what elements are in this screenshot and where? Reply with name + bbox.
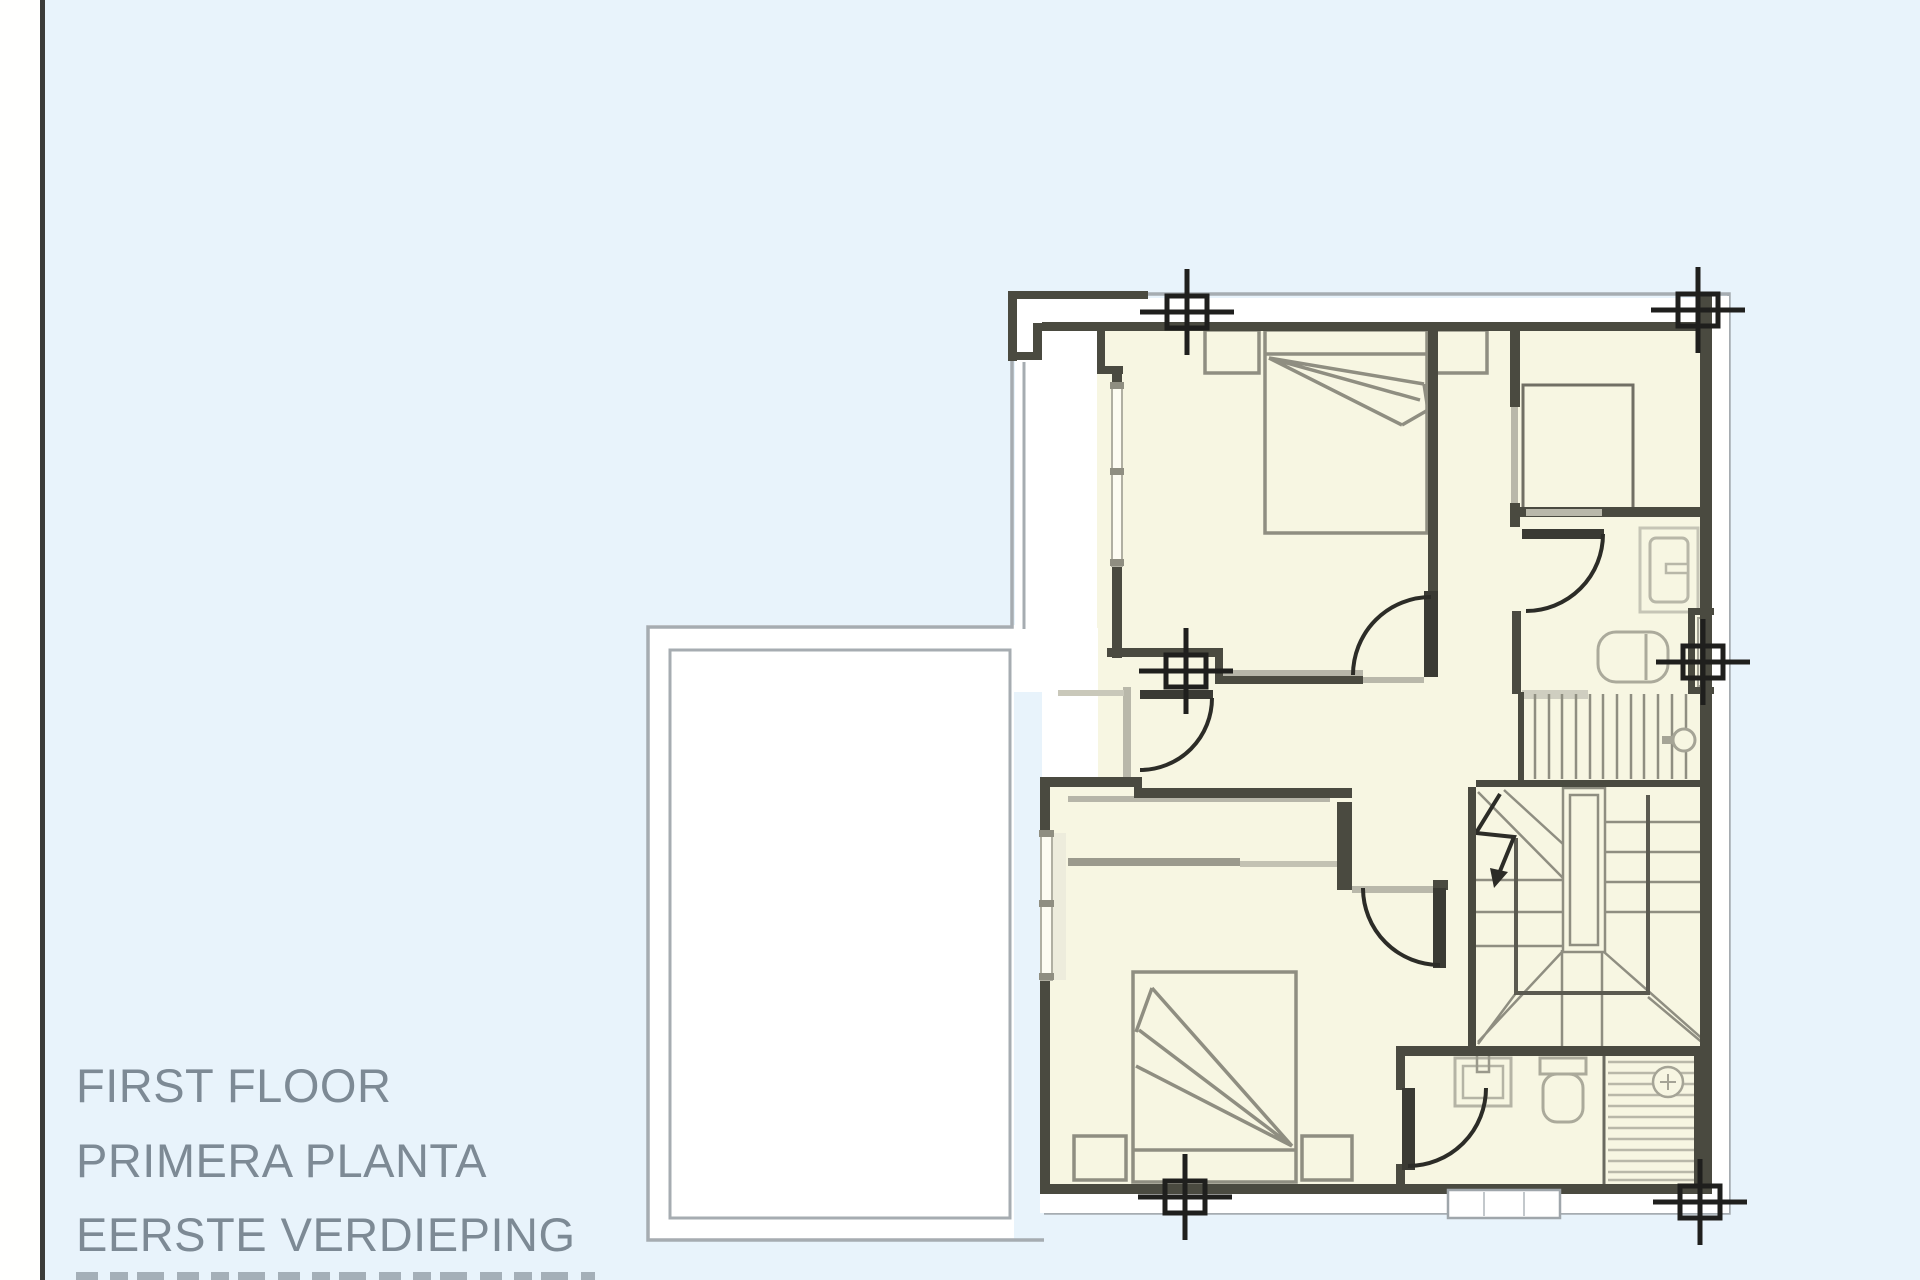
paper-margin	[0, 0, 40, 1280]
wall	[1008, 291, 1148, 299]
wall-bedroom2-top	[1134, 788, 1352, 798]
door-leaf	[1433, 888, 1446, 968]
wall-stair-left	[1468, 787, 1476, 1047]
wardrobe-strip-light	[1240, 861, 1338, 867]
wall	[1040, 980, 1050, 1184]
wall	[1033, 323, 1042, 360]
window-mullion	[1110, 468, 1124, 475]
door-leaf	[1522, 529, 1604, 539]
niche-wall	[1688, 608, 1695, 694]
door-leaf	[1424, 591, 1438, 677]
left-setback-notch	[1042, 628, 1098, 779]
wall-bedroom2-right	[1337, 802, 1352, 890]
page: FIRST FLOOR PRIMERA PLANTA EERSTE VERDIE…	[0, 0, 1920, 1280]
stair-core-inner	[1570, 795, 1598, 945]
wall	[1396, 1046, 1405, 1090]
wardrobe-strip	[1068, 858, 1240, 866]
right-white-band	[1712, 296, 1729, 1213]
wall	[1518, 692, 1524, 780]
wall	[1112, 560, 1122, 658]
caption-primera-planta: PRIMERA PLANTA	[76, 1137, 487, 1184]
caption-eerste-verdieping: EERSTE VERDIEPING	[76, 1211, 576, 1258]
caption-first-floor: FIRST FLOOR	[76, 1062, 391, 1109]
terrace-inner-outline	[670, 650, 1010, 1218]
window-mullion	[1110, 559, 1124, 566]
shower-handle	[1666, 564, 1688, 573]
wall-bath-top	[1396, 1046, 1712, 1056]
door-opening	[1526, 509, 1602, 516]
door-leaf	[1402, 1088, 1415, 1170]
window-mullion	[1039, 830, 1054, 837]
wall	[1512, 611, 1521, 694]
window-mullion	[1039, 973, 1054, 980]
newel-post-icon	[1673, 729, 1695, 751]
clipped-caption-line	[76, 1272, 595, 1280]
window-mullion	[1039, 900, 1054, 907]
wall-closet-left	[1510, 322, 1520, 407]
stair-handrail	[1522, 690, 1588, 699]
wall	[1040, 777, 1050, 833]
wall-bottom	[1040, 1184, 1712, 1194]
wall	[1040, 777, 1140, 787]
wall	[1476, 780, 1712, 787]
door-leaf	[1140, 690, 1213, 699]
wall	[1008, 291, 1017, 361]
window-mullion	[1110, 382, 1124, 389]
page-edge	[0, 0, 45, 1280]
wall	[1215, 676, 1363, 684]
top-white-band	[1017, 298, 1727, 322]
exterior-step	[1448, 1190, 1560, 1218]
wall-top	[1042, 322, 1712, 331]
paper-edge-rule	[40, 0, 45, 1280]
wall-bedroom1-right	[1428, 322, 1438, 593]
